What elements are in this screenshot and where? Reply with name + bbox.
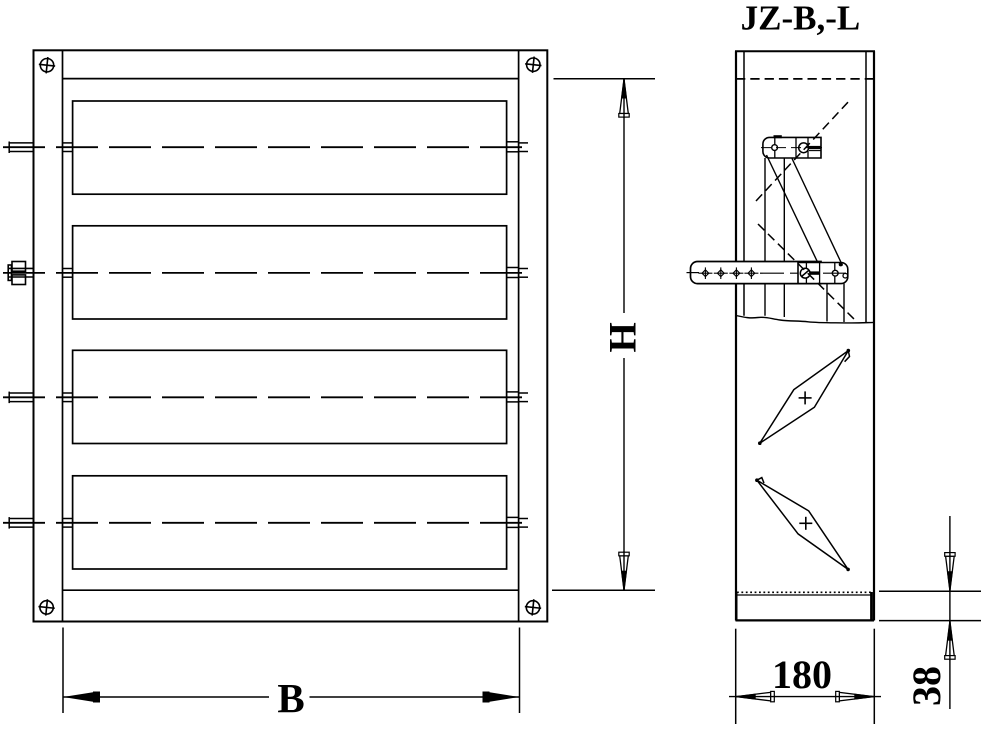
svg-text:H: H [601,322,644,352]
svg-text:JZ-B,-L: JZ-B,-L [741,0,861,38]
svg-text:180: 180 [772,652,832,697]
svg-text:38: 38 [904,666,949,706]
svg-text:B: B [277,675,304,721]
